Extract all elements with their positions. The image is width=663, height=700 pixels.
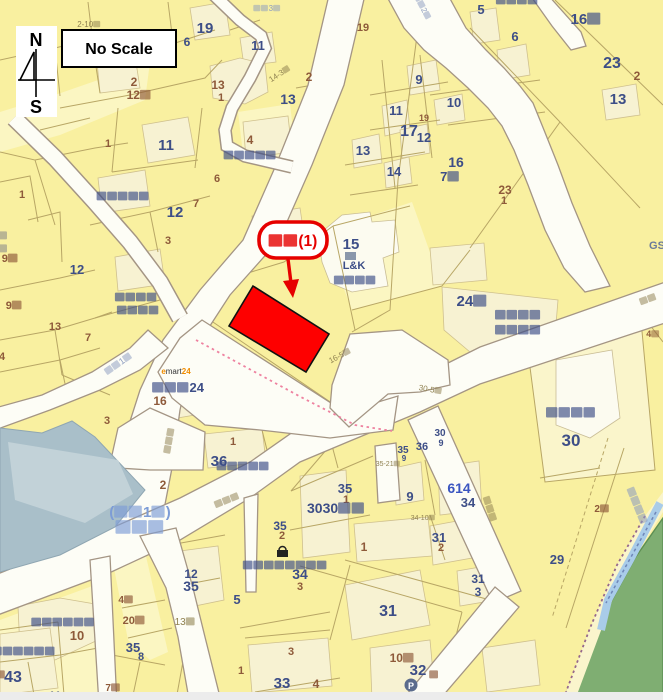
svg-text:14: 14 [387, 164, 402, 179]
svg-text:17: 17 [400, 123, 418, 140]
svg-text:5: 5 [477, 2, 484, 17]
svg-text:9: 9 [406, 489, 413, 504]
svg-text:32: 32 [410, 662, 427, 679]
svg-text:35-21: 35-21 [376, 461, 394, 468]
svg-text:P: P [408, 681, 414, 691]
svg-text:3: 3 [288, 646, 294, 658]
svg-text:13: 13 [280, 91, 296, 107]
svg-text:12: 12 [167, 204, 184, 221]
svg-text:L&K: L&K [343, 260, 366, 272]
svg-text:13: 13 [610, 91, 627, 108]
svg-text:9: 9 [2, 253, 8, 265]
svg-text:7: 7 [193, 198, 199, 210]
svg-text:No Scale: No Scale [85, 41, 153, 58]
svg-text:4: 4 [118, 595, 124, 606]
svg-text:N: N [30, 30, 43, 50]
svg-text:1: 1 [361, 540, 368, 554]
svg-text:10: 10 [70, 628, 84, 643]
svg-text:10: 10 [447, 95, 461, 110]
svg-text:9: 9 [438, 438, 443, 448]
svg-text:36: 36 [416, 441, 428, 453]
svg-text:): ) [166, 504, 171, 521]
svg-text:31: 31 [471, 572, 485, 586]
svg-text:2-10: 2-10 [77, 20, 94, 29]
svg-text:2: 2 [438, 542, 444, 554]
svg-text:12: 12 [127, 88, 141, 102]
svg-text:13: 13 [49, 321, 61, 333]
svg-text:29: 29 [550, 552, 564, 567]
svg-text:7: 7 [440, 169, 447, 184]
svg-text:4: 4 [247, 133, 254, 147]
svg-text:1: 1 [218, 92, 224, 104]
svg-text:1: 1 [238, 665, 244, 677]
svg-text:(: ( [109, 504, 114, 521]
svg-text:2: 2 [131, 75, 138, 89]
svg-text:16: 16 [153, 394, 167, 408]
svg-text:43: 43 [4, 669, 22, 686]
svg-text:4: 4 [646, 329, 651, 339]
svg-text:2: 2 [634, 69, 641, 83]
svg-text:13: 13 [175, 617, 187, 628]
svg-text:9: 9 [6, 300, 12, 312]
svg-text:33: 33 [274, 675, 291, 692]
svg-text:12: 12 [70, 262, 84, 277]
svg-text:1: 1 [105, 138, 111, 150]
svg-text:2: 2 [160, 478, 167, 492]
svg-text:1: 1 [230, 436, 236, 448]
svg-text:5: 5 [233, 592, 240, 607]
svg-text:3030: 3030 [307, 500, 338, 516]
svg-text:15: 15 [343, 236, 360, 253]
svg-text:20: 20 [123, 615, 135, 627]
svg-text:11: 11 [158, 137, 174, 154]
svg-text:24: 24 [190, 380, 205, 395]
svg-text:6: 6 [511, 29, 518, 44]
svg-text:2: 2 [594, 504, 600, 515]
svg-text:19: 19 [419, 113, 429, 123]
svg-text:19: 19 [357, 22, 369, 34]
svg-text:1: 1 [19, 189, 25, 201]
svg-text:3: 3 [104, 415, 110, 427]
svg-text:24: 24 [457, 293, 474, 310]
svg-text:31: 31 [379, 603, 397, 620]
svg-text:3: 3 [475, 585, 482, 599]
svg-text:8: 8 [138, 651, 144, 663]
svg-text:9: 9 [402, 454, 407, 463]
svg-text:16: 16 [571, 11, 588, 28]
svg-text:9: 9 [415, 72, 422, 87]
svg-text:1: 1 [501, 195, 507, 207]
svg-text:34-10: 34-10 [411, 515, 429, 522]
svg-text:34: 34 [461, 495, 476, 510]
svg-text:23: 23 [603, 55, 621, 72]
svg-text:11: 11 [389, 103, 403, 118]
svg-text:12: 12 [417, 130, 431, 145]
svg-text:1: 1 [143, 504, 151, 521]
svg-text:(1): (1) [298, 233, 317, 250]
svg-text:34: 34 [292, 566, 308, 582]
svg-text:emart24: emart24 [161, 367, 191, 376]
svg-text:7: 7 [85, 332, 91, 344]
svg-text:2: 2 [279, 530, 285, 542]
svg-text:4: 4 [0, 351, 6, 363]
svg-text:614: 614 [447, 480, 471, 496]
svg-text:10: 10 [390, 651, 404, 665]
svg-text:16: 16 [448, 154, 464, 170]
svg-text:4: 4 [313, 677, 320, 691]
svg-text:3: 3 [165, 235, 171, 247]
svg-text:13: 13 [211, 78, 225, 92]
svg-text:S: S [30, 97, 42, 117]
svg-text:30: 30 [562, 431, 581, 450]
svg-text:11: 11 [251, 38, 265, 53]
svg-text:35: 35 [183, 578, 199, 594]
svg-text:13: 13 [356, 143, 370, 158]
svg-text:GS: GS [649, 240, 663, 252]
svg-text:2: 2 [306, 70, 313, 84]
svg-text:3: 3 [297, 581, 303, 593]
svg-text:19: 19 [197, 20, 214, 37]
svg-text:6: 6 [184, 35, 191, 49]
svg-text:6: 6 [214, 173, 220, 185]
svg-text:3: 3 [269, 4, 274, 13]
